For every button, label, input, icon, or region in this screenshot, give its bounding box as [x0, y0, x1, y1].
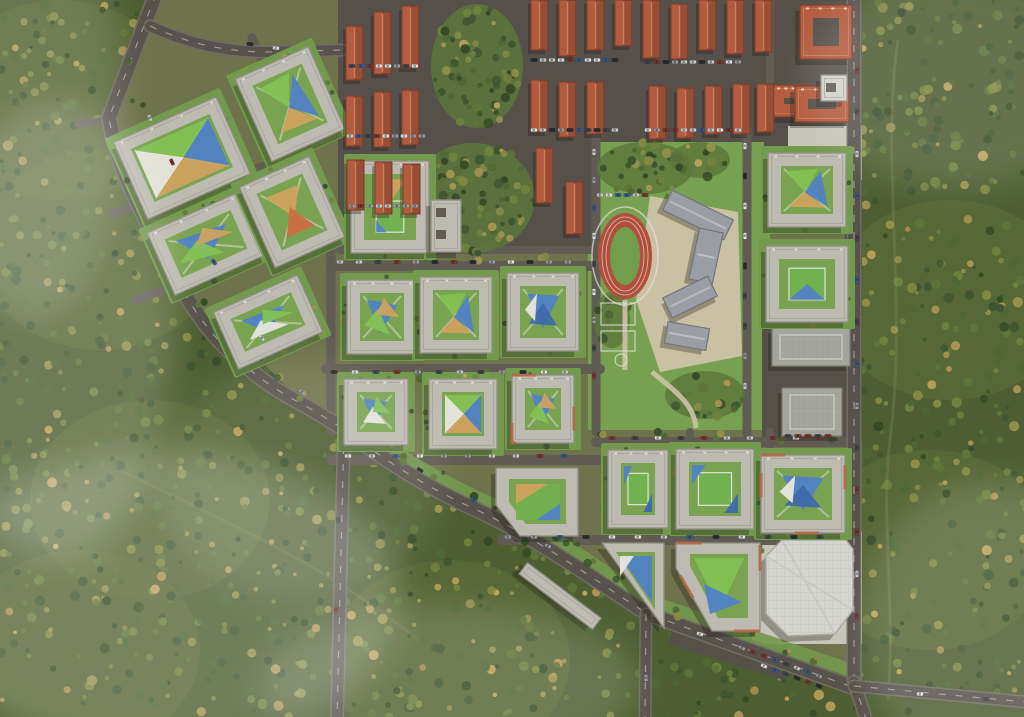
- masterplan-svg: [0, 0, 1024, 717]
- aerial-masterplan: [0, 0, 1024, 717]
- fog-layer: [0, 0, 1024, 717]
- atmosphere-tint: [0, 0, 1024, 717]
